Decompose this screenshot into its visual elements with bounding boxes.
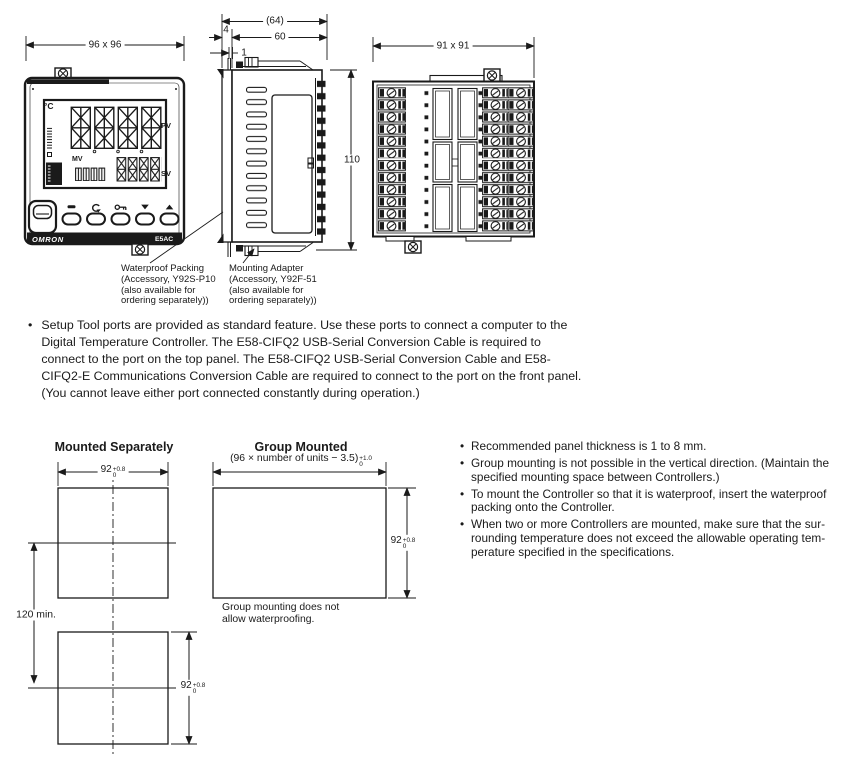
note-text: Recommended panel thickness is 1 to 8 mm…: [471, 440, 706, 454]
display-pv-label: PV: [161, 121, 171, 130]
rear-view-drawing: [373, 37, 534, 253]
group-mounting-caption: Group mounting does not allow waterproof…: [222, 602, 339, 627]
mounting-notes-list: •Recommended panel thickness is 1 to 8 m…: [460, 440, 854, 563]
model-label: E5AC: [155, 236, 173, 243]
front-view-drawing: [25, 36, 184, 255]
tolerance-minus: 0: [403, 544, 407, 550]
note-text: When two or more Controllers are mounted…: [471, 518, 825, 559]
formula-tolerance: +1.00: [359, 456, 372, 468]
side-dim-overall-label: (64): [263, 16, 287, 27]
setup-tool-note-text: Setup Tool ports are provided as standar…: [41, 317, 581, 402]
front-setup-port-cover: [29, 201, 56, 233]
front-dim-label: 96 x 96: [86, 40, 125, 51]
side-dim-bezel-label: 4: [223, 25, 229, 36]
brand-logo: OMRON: [32, 235, 64, 244]
mv-bar-digits: [75, 168, 106, 182]
sv-digits: [117, 157, 162, 182]
display-unit-label: °C: [44, 101, 54, 111]
dim-tolerance: +0.80: [403, 538, 416, 550]
rear-dim-label: 91 x 91: [434, 41, 473, 52]
indicator-ticks: [47, 127, 52, 149]
bullet: •: [28, 317, 32, 402]
shift-key-button: [112, 214, 130, 225]
spacing-dim-label: 120 min.: [13, 610, 59, 621]
callout-waterproof-packing: Waterproof Packing (Accessory, Y92S-P10 …: [121, 264, 216, 307]
setup-tool-note: • Setup Tool ports are provided as stand…: [28, 317, 581, 402]
side-bezel: [222, 70, 232, 242]
side-dim-gap-label: 1: [241, 48, 247, 59]
bullet: •: [460, 518, 471, 559]
side-view-drawing: [209, 14, 357, 257]
datasheet-page: 96 x 96 (64) 60 4 1 110 91 x 91 °C PV MV…: [0, 0, 854, 772]
display-mv-label: MV: [72, 156, 83, 163]
vent-slots: [246, 84, 270, 234]
note-item: •Recommended panel thickness is 1 to 8 m…: [460, 440, 854, 454]
side-door: [272, 95, 312, 233]
note-text: Group mounting is not possible in the ve…: [471, 457, 829, 484]
note-item: •When two or more Controllers are mounte…: [460, 518, 854, 559]
bullet: •: [460, 457, 471, 484]
dim-value: 92: [101, 464, 112, 475]
callout-mounting-adapter: Mounting Adapter (Accessory, Y92F-51 (al…: [229, 264, 317, 307]
rear-dots-left: [424, 87, 429, 232]
tolerance-minus: 0: [359, 462, 363, 468]
dim-value: 92: [181, 680, 192, 691]
side-dim-body-label: 60: [271, 32, 288, 43]
display-sv-label: SV: [161, 169, 171, 178]
group-cutout-height-dim: 92+0.80: [388, 535, 419, 551]
bullet: •: [460, 488, 471, 515]
level-key-button: [63, 214, 81, 225]
mode-key-button: [87, 214, 105, 225]
bullet: •: [460, 440, 471, 454]
cutout-width-dim: 92+0.80: [98, 464, 129, 480]
side-terminal-nubs: [316, 78, 328, 236]
mounting-clamp-bottom: [236, 243, 313, 256]
group-width-formula: (96 × number of units − 3.5)+1.00: [230, 453, 372, 469]
group-cutout-rect: [213, 488, 386, 598]
tolerance-minus: 0: [113, 473, 117, 479]
tolerance-minus: 0: [193, 689, 197, 695]
note-item: •Group mounting is not possible in the v…: [460, 457, 854, 484]
formula-value: (96 × number of units − 3.5): [230, 453, 358, 464]
mounted-separately-title: Mounted Separately: [55, 440, 174, 454]
pv-digits: [71, 107, 164, 150]
dim-tolerance: +0.80: [113, 467, 126, 479]
group-mounted-diagram: [213, 462, 416, 598]
dim-value: 92: [391, 535, 402, 546]
dim-tolerance: +0.80: [193, 683, 206, 695]
side-dim-height-label: 110: [341, 155, 363, 166]
note-item: •To mount the Controller so that it is w…: [460, 488, 854, 515]
mounting-clamp-top: [236, 58, 313, 71]
group-mounted-title: Group Mounted: [254, 440, 347, 454]
note-text: To mount the Controller so that it is wa…: [471, 488, 826, 515]
level-key-icon: [68, 205, 76, 208]
up-key-button: [161, 214, 179, 225]
cutout-height-dim: 92+0.80: [178, 680, 209, 696]
down-key-button: [136, 214, 154, 225]
